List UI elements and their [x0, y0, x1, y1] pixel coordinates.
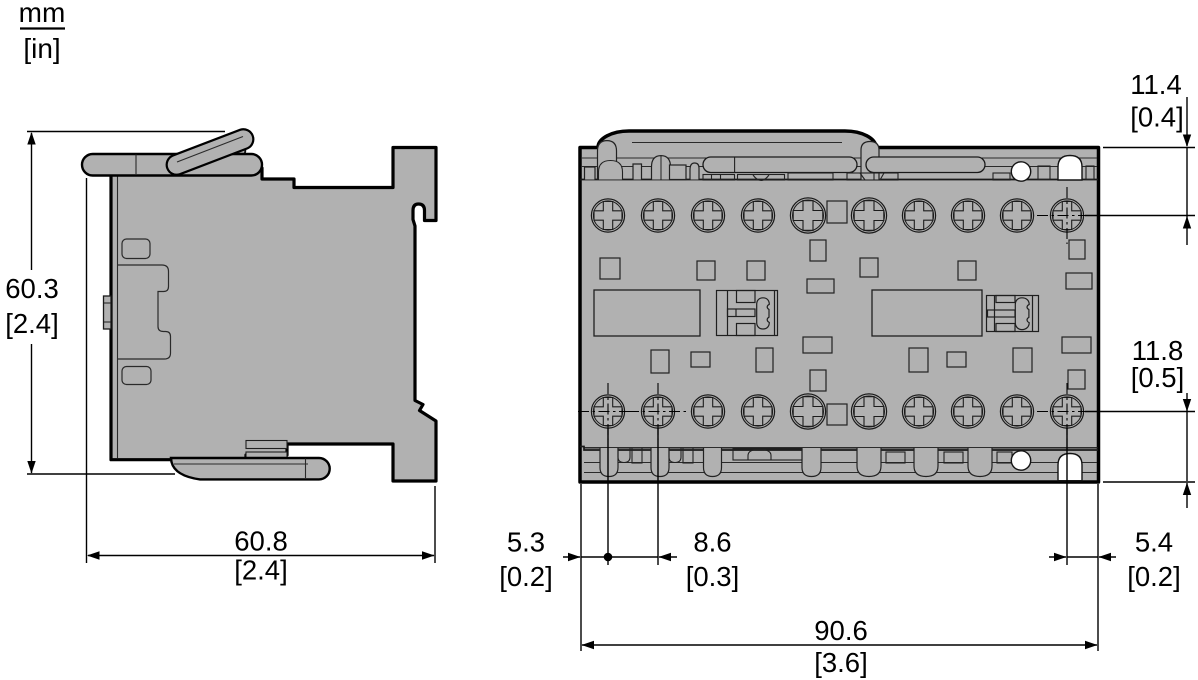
svg-text:[in]: [in]	[23, 33, 60, 64]
svg-text:[0.2]: [0.2]	[499, 561, 553, 592]
svg-text:90.6: 90.6	[814, 615, 868, 646]
svg-text:[3.6]: [3.6]	[814, 647, 868, 678]
svg-text:11.4: 11.4	[1130, 69, 1181, 100]
svg-text:60.3: 60.3	[5, 273, 59, 304]
svg-text:mm: mm	[19, 0, 66, 28]
svg-text:[0.4]: [0.4]	[1130, 102, 1184, 133]
svg-text:5.4: 5.4	[1135, 527, 1173, 558]
svg-text:[0.3]: [0.3]	[686, 561, 740, 592]
svg-text:[0.5]: [0.5]	[1131, 362, 1185, 393]
svg-text:[0.2]: [0.2]	[1127, 561, 1181, 592]
svg-text:8.6: 8.6	[693, 527, 731, 558]
svg-text:[2.4]: [2.4]	[5, 308, 59, 339]
svg-text:[2.4]: [2.4]	[234, 555, 288, 586]
svg-text:5.3: 5.3	[507, 527, 545, 558]
svg-text:60.8: 60.8	[234, 526, 288, 557]
